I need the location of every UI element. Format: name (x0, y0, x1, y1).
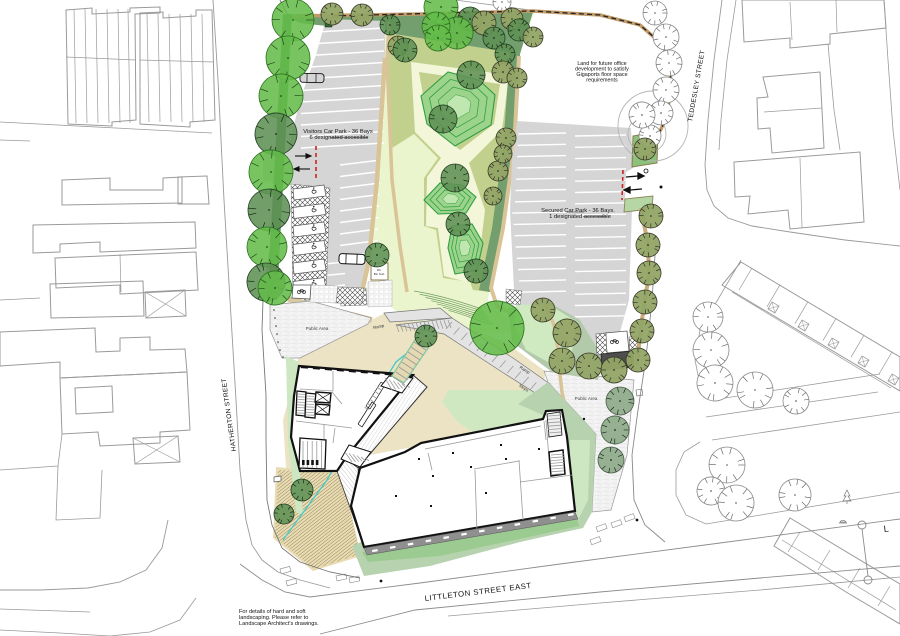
svg-text:Bin Sub: Bin Sub (374, 272, 385, 276)
svg-text:6 designated accesible: 6 designated accesible (310, 135, 369, 141)
svg-text:Public Area: Public Area (575, 396, 598, 401)
svg-text:Public Area: Public Area (306, 326, 329, 331)
svg-text:L: L (883, 523, 890, 534)
svg-text:requirements: requirements (586, 78, 618, 84)
svg-text:1 designated accessible: 1 designated accessible (549, 214, 611, 220)
svg-text:Landscape Architect's drawings: Landscape Architect's drawings. (239, 621, 319, 627)
